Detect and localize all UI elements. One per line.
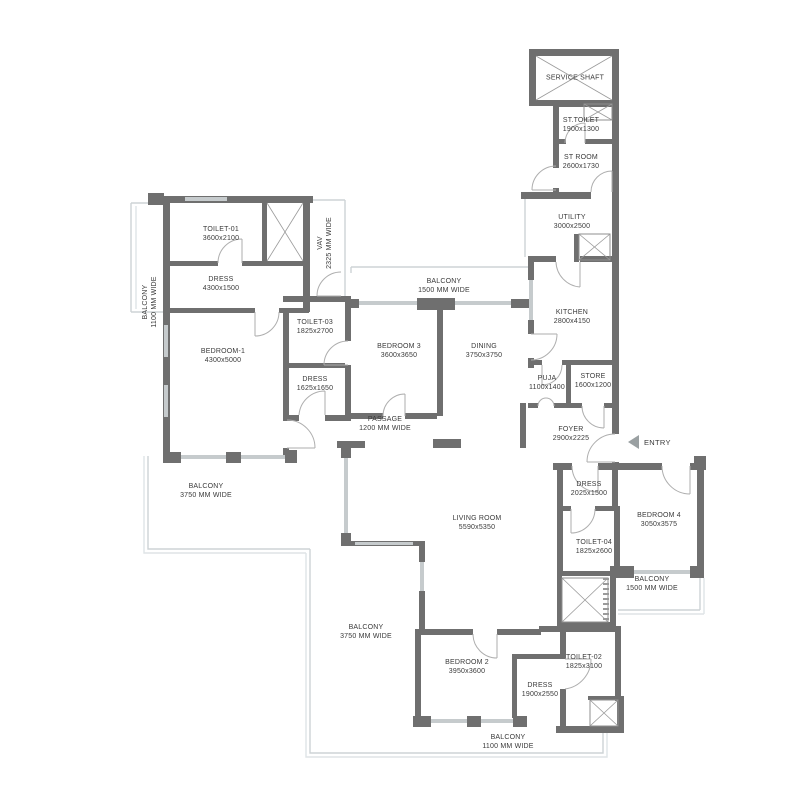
floor-plan-stage: SERVICE SHAFTST.TOILET1900x1300ST ROOM26… <box>0 0 800 800</box>
walls <box>148 49 706 733</box>
entry-label: ENTRY <box>644 438 671 447</box>
floor-plan-drawing <box>0 0 800 800</box>
entry-marker: ENTRY <box>628 435 671 449</box>
entry-arrow-icon <box>628 435 639 449</box>
windows <box>164 197 690 723</box>
